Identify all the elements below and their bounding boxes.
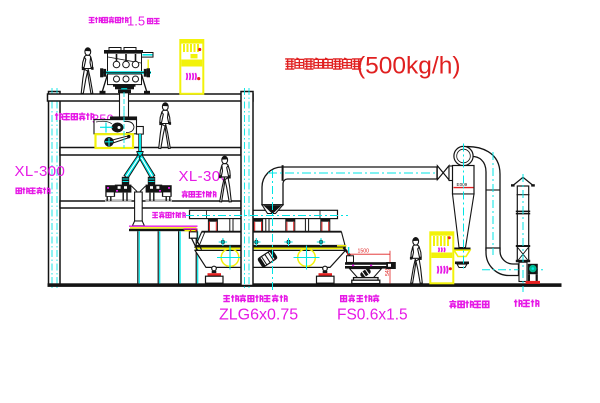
svg-text:XL-300: XL-300 bbox=[15, 163, 66, 180]
svg-text:E009: E009 bbox=[457, 182, 468, 187]
svg-text:(500kg/h): (500kg/h) bbox=[357, 53, 461, 80]
svg-text:1.5: 1.5 bbox=[127, 14, 145, 29]
svg-text:ZLG6x0.75: ZLG6x0.75 bbox=[219, 307, 298, 324]
svg-text:1500: 1500 bbox=[358, 249, 370, 255]
svg-text:FS0.6x1.5: FS0.6x1.5 bbox=[337, 307, 408, 324]
